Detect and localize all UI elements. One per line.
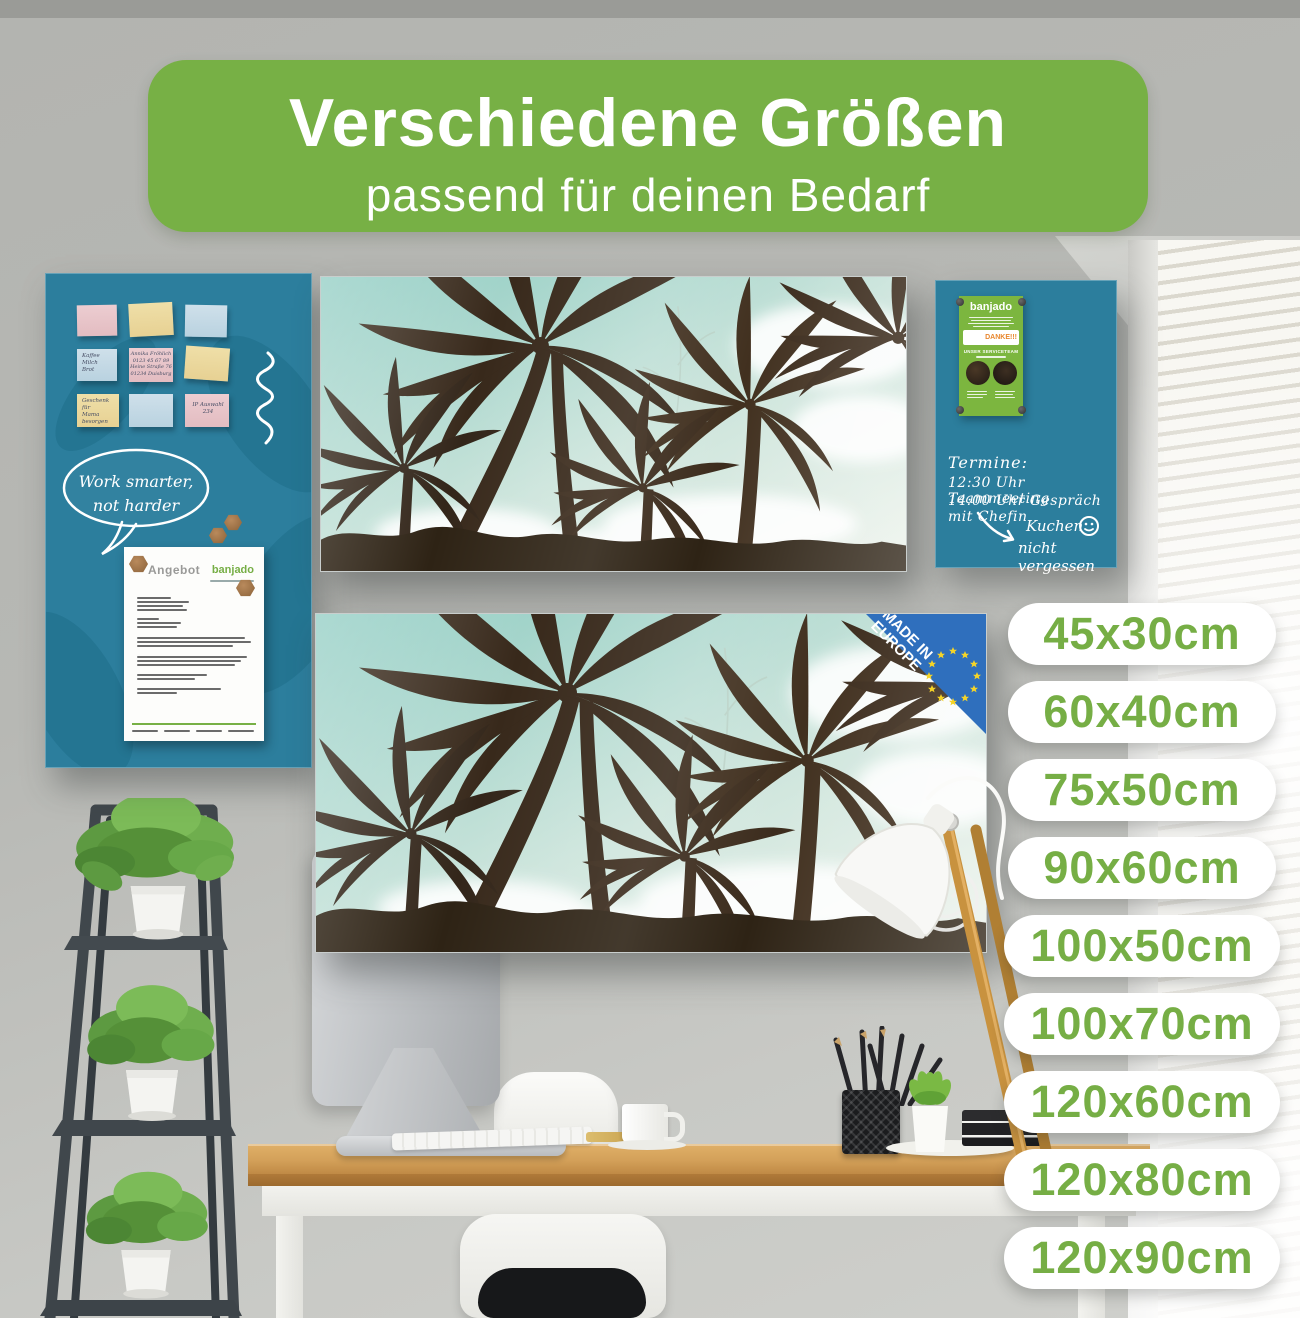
document-footer-columns [132, 728, 256, 734]
text-line-bar [137, 656, 247, 658]
banner-subtitle: passend für deinen Bedarf [148, 168, 1148, 222]
size-option-pill: 120x60cm [1004, 1071, 1280, 1133]
text-line-bar [137, 601, 189, 603]
sticky-note [129, 394, 173, 427]
size-label: 45x30cm [1043, 608, 1240, 660]
text-line-bar [164, 730, 190, 732]
sticky-note: Geschenk für Mama besorgen [77, 394, 119, 427]
text-line-bar [196, 730, 222, 732]
flyer-brand: banjado [959, 296, 1023, 313]
text-line-bar [973, 326, 1009, 328]
size-option-pill: 60x40cm [1008, 681, 1276, 743]
flyer-thanks-box: DANKE!!! [963, 330, 1019, 345]
arrow-doodle [974, 509, 1022, 549]
text-line-bar [228, 730, 254, 732]
appointments-title: Termine: [948, 453, 1028, 472]
flyer-footer-columns [959, 389, 1023, 401]
text-line-bar [995, 397, 1015, 398]
text-line-bar [137, 688, 221, 690]
magnet-dot [956, 406, 964, 414]
text-line-bar [137, 641, 251, 643]
text-line-bar [967, 397, 983, 398]
text-line-bar [137, 637, 245, 639]
headline-banner: Verschiedene Größen passend für deinen B… [148, 60, 1148, 232]
magnet-dot [1018, 406, 1026, 414]
banner-title: Verschiedene Größen [148, 84, 1148, 162]
size-label: 100x50cm [1030, 920, 1253, 972]
size-label: 100x70cm [1030, 998, 1253, 1050]
mug-saucer [608, 1140, 686, 1150]
text-line-bar [137, 692, 177, 694]
text-line-bar [137, 626, 177, 628]
plant-middle [82, 985, 219, 1121]
mug-handle [664, 1112, 685, 1142]
size-label: 75x50cm [1043, 764, 1240, 816]
size-label: 120x80cm [1030, 1154, 1253, 1206]
text-line-bar [995, 394, 1013, 395]
sticky-note: Kaffee Milch Brot [77, 349, 117, 381]
document-footer-rule [132, 723, 256, 725]
reminder-line: nicht vergessen [1018, 539, 1116, 575]
size-option-pill: 100x70cm [1004, 993, 1280, 1055]
flyer-thanks: DANKE!!! [985, 334, 1017, 341]
size-option-pill: 45x30cm [1008, 603, 1276, 665]
text-line-bar [137, 609, 187, 611]
text-line-bar [969, 317, 1013, 319]
note-text: Kaffee Milch Brot [77, 349, 117, 374]
plant-bottom [81, 1172, 213, 1299]
size-label: 90x60cm [1043, 842, 1240, 894]
document-title: Angebot [148, 563, 200, 577]
text-line-bar [137, 605, 183, 607]
text-line-bar [137, 674, 207, 676]
note-text: Annika Fröhlich 0123 45 67 89 Heine Stra… [129, 348, 173, 377]
text-line-bar [137, 660, 241, 662]
magnet-dot [1018, 298, 1026, 306]
desk-leg-left [276, 1216, 303, 1318]
text-line-bar [137, 622, 181, 624]
offer-document: Angebot banjado [124, 547, 264, 741]
size-label: 120x60cm [1030, 1076, 1253, 1128]
size-option-pill: 120x80cm [1004, 1149, 1280, 1211]
text-line-bar [137, 645, 233, 647]
text-line-bar [971, 320, 1011, 322]
product-showcase-image: Verschiedene Größen passend für deinen B… [0, 18, 1300, 1318]
memo-board-right: banjado DANKE!!! UNSER SERVICETEAM [935, 280, 1117, 568]
size-option-pill: 120x90cm [1004, 1227, 1280, 1289]
text-line-bar [132, 730, 158, 732]
hexagon-magnet [129, 555, 148, 573]
glass-board-top [320, 276, 907, 572]
text-line-bar [967, 391, 987, 392]
plant-shelf [10, 798, 260, 1318]
chair-seat-cushion [478, 1268, 646, 1318]
flyer-team: UNSER SERVICETEAM [959, 349, 1023, 354]
sticky-note: Annika Fröhlich 0123 45 67 89 Heine Stra… [129, 348, 173, 382]
magnet-dot [956, 298, 964, 306]
coffee-mug [622, 1104, 668, 1144]
speech-bubble-text: Work smarter, not harder [70, 470, 202, 518]
note-text: IP Auswahl 234 [185, 394, 229, 416]
glass-reflection [321, 277, 906, 571]
size-option-pill: 75x50cm [1008, 759, 1276, 821]
sticky-note [77, 305, 118, 337]
sticky-note [128, 302, 174, 337]
size-option-pill: 100x50cm [1004, 915, 1280, 977]
flyer-dog-photos [959, 361, 1023, 385]
note-text: Geschenk für Mama besorgen [77, 394, 119, 427]
memo-board-left: Kaffee Milch Brot Annika Fröhlich 0123 4… [45, 273, 312, 768]
size-label: 60x40cm [1043, 686, 1240, 738]
sticky-note: IP Auswahl 234 [185, 394, 229, 427]
smiley-doodle [1078, 515, 1100, 537]
flyer: banjado DANKE!!! UNSER SERVICETEAM [959, 296, 1023, 416]
text-line-bar [976, 356, 1006, 358]
text-line-bar [137, 678, 195, 680]
text-line-bar [137, 597, 171, 599]
reminder-word: Kuchen [1026, 517, 1083, 535]
text-line-bar [968, 323, 1014, 325]
made-in-europe-badge: MADE IN EUROPE [866, 614, 986, 734]
text-line-bar [137, 618, 159, 620]
flyer-text-lines [959, 313, 1023, 327]
size-option-pill: 90x60cm [1008, 837, 1276, 899]
sticky-note [184, 346, 230, 382]
text-line-bar [995, 391, 1015, 392]
dog-photo [993, 361, 1017, 385]
dog-photo [966, 361, 990, 385]
squiggle-doodle [246, 349, 286, 449]
text-line-bar [967, 394, 987, 395]
document-text-lines [137, 595, 251, 696]
sticky-note [185, 305, 228, 338]
size-label: 120x90cm [1030, 1232, 1253, 1284]
text-line-bar [137, 664, 235, 666]
